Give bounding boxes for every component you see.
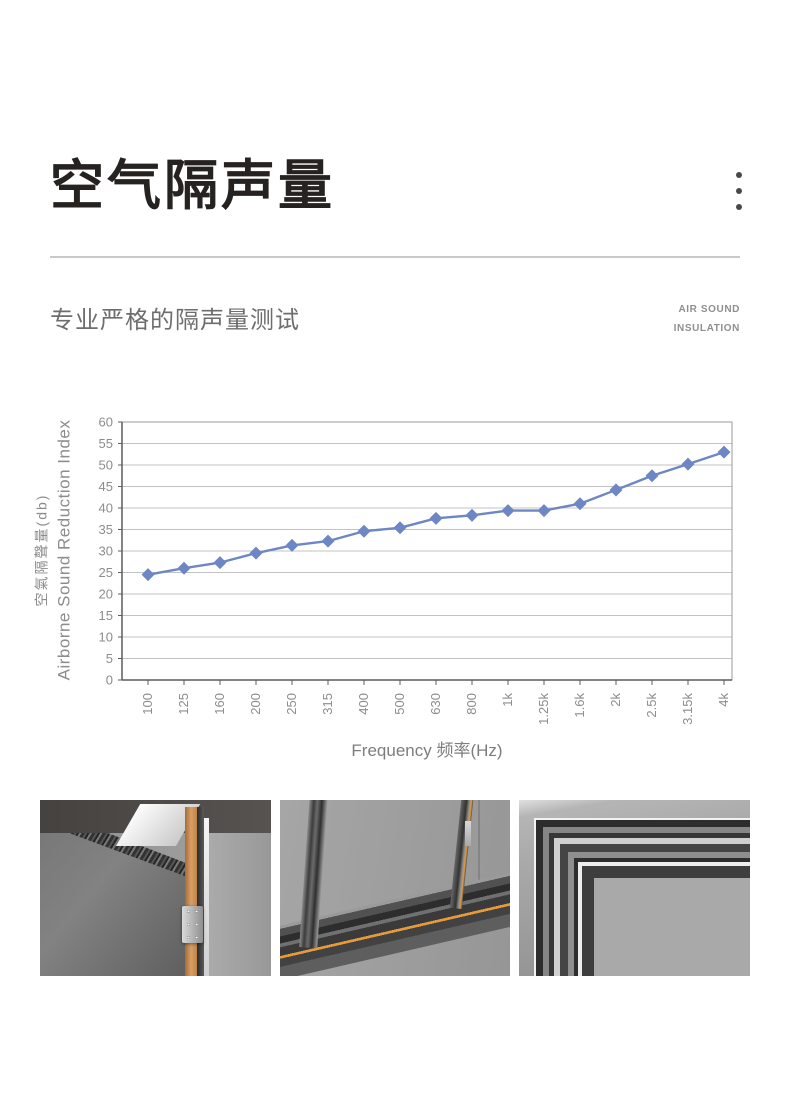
y-axis-label-en: Airborne Sound Reduction Index [52, 420, 76, 681]
tagline-line1: AIR SOUND [674, 300, 740, 319]
data-marker [321, 535, 334, 548]
x-tick-label: 250 [284, 693, 299, 715]
page: 空气隔声量 专业严格的隔声量测试 AIR SOUND INSULATION 空氣… [0, 0, 790, 1109]
frame-jamb [197, 807, 204, 976]
data-marker [141, 568, 154, 581]
y-axis-label: 空氣隔聲量(db) Airborne Sound Reduction Index [30, 416, 76, 684]
dot-icon [736, 188, 742, 194]
x-tick-label: 315 [320, 693, 335, 715]
gallery [40, 800, 750, 976]
sound-reduction-chart: 空氣隔聲量(db) Airborne Sound Reduction Index… [30, 412, 744, 764]
x-tick-label: 1.6k [572, 693, 587, 718]
section-subtitle: 专业严格的隔声量测试 [50, 300, 300, 335]
y-tick-label: 55 [99, 436, 113, 451]
vertical-dots-icon [736, 156, 742, 210]
x-tick-label: 630 [428, 693, 443, 715]
section-divider [50, 256, 740, 258]
data-marker [717, 446, 730, 459]
y-axis-label-cn: 空氣隔聲量(db) [30, 420, 52, 681]
y-tick-label: 20 [99, 587, 113, 602]
y-tick-label: 15 [99, 608, 113, 623]
y-tick-label: 60 [99, 415, 113, 430]
data-marker [213, 556, 226, 569]
y-tick-label: 0 [106, 673, 113, 688]
x-tick-label: 1k [500, 693, 515, 707]
data-marker [537, 504, 550, 517]
header: 空气隔声量 [50, 156, 742, 216]
gallery-image-1 [40, 800, 271, 976]
hinge-plate [182, 906, 203, 943]
data-marker [393, 521, 406, 534]
wood-seal-strip [185, 807, 197, 976]
frame-latch [465, 821, 471, 846]
data-marker [357, 525, 370, 538]
y-tick-label: 35 [99, 522, 113, 537]
y-tick-label: 50 [99, 458, 113, 473]
x-tick-label: 3.15k [680, 693, 695, 725]
subheader: 专业严格的隔声量测试 AIR SOUND INSULATION [50, 300, 740, 338]
y-tick-label: 30 [99, 544, 113, 559]
x-tick-label: 4k [716, 693, 731, 707]
gallery-image-3 [519, 800, 750, 976]
x-tick-label: 500 [392, 693, 407, 715]
x-tick-label: 100 [140, 693, 155, 715]
gallery-image-2 [280, 800, 511, 976]
frame-profile-band [594, 878, 750, 976]
x-axis-title: Frequency 频率(Hz) [351, 741, 502, 760]
y-tick-label: 40 [99, 501, 113, 516]
x-tick-label: 400 [356, 693, 371, 715]
data-marker [285, 539, 298, 552]
data-marker [249, 547, 262, 560]
tagline-line2: INSULATION [674, 319, 740, 338]
x-tick-label: 200 [248, 693, 263, 715]
x-tick-label: 800 [464, 693, 479, 715]
chart-plot-area: 0510152025303540455055601001251602002503… [76, 412, 744, 764]
english-tagline: AIR SOUND INSULATION [674, 300, 740, 338]
frame-white-face [204, 818, 209, 976]
x-tick-label: 1.25k [536, 693, 551, 725]
dot-icon [736, 204, 742, 210]
x-tick-label: 2k [608, 693, 623, 707]
y-tick-label: 25 [99, 565, 113, 580]
data-marker [429, 512, 442, 525]
render-wall [206, 833, 271, 976]
data-marker [501, 504, 514, 517]
y-tick-label: 5 [106, 651, 113, 666]
page-title: 空气隔声量 [50, 156, 335, 216]
data-marker [609, 483, 622, 496]
x-tick-label: 125 [176, 693, 191, 715]
data-marker [645, 469, 658, 482]
y-tick-label: 45 [99, 479, 113, 494]
x-tick-label: 160 [212, 693, 227, 715]
y-tick-label: 10 [99, 630, 113, 645]
dot-icon [736, 172, 742, 178]
data-marker [681, 458, 694, 471]
x-tick-label: 2.5k [644, 693, 659, 718]
data-marker [465, 509, 478, 522]
y-axis-label-text: 空氣隔聲量(db) Airborne Sound Reduction Index [30, 420, 76, 681]
